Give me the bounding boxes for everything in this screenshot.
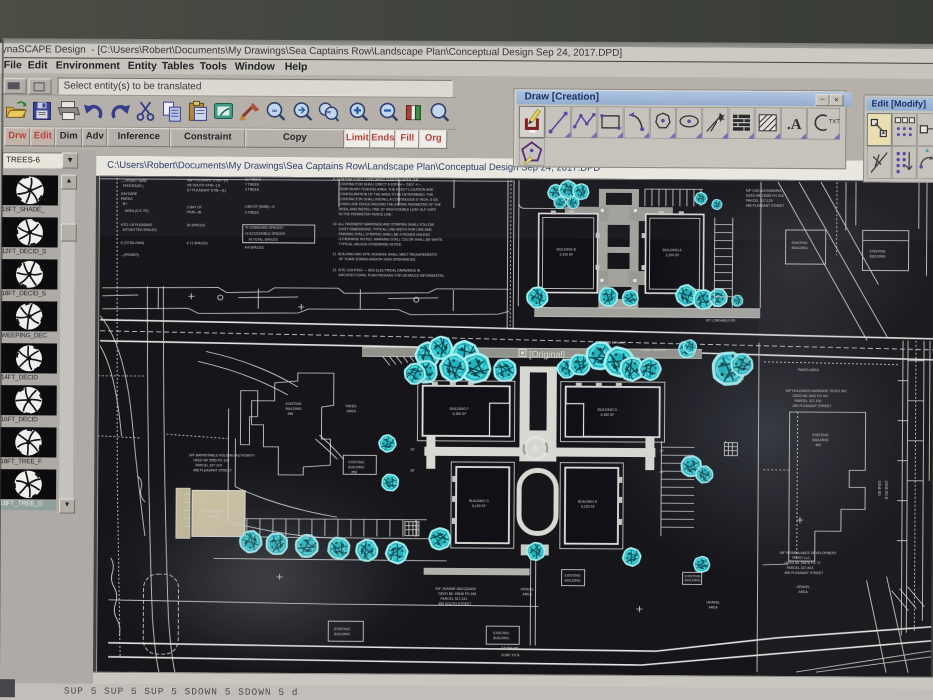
svg-text:ZONE YD B: ZONE YD B — [501, 653, 520, 657]
svg-text:BUILDING E: BUILDING E — [578, 500, 598, 504]
svg-text:12. SITE LIGHTING — SEE ELECTR: 12. SITE LIGHTING — SEE ELECTRICAL DRAWI… — [332, 268, 420, 273]
svg-text:∞: ∞ — [272, 108, 277, 115]
svg-text:6,150 SF: 6,150 SF — [472, 504, 486, 508]
svg-text:N/F JOANNE MACQUADE: N/F JOANNE MACQUADE — [436, 587, 477, 591]
svg-text:6,150 SF: 6,150 SF — [581, 505, 595, 509]
svg-text:PAVED: PAVED — [346, 404, 358, 408]
svg-text:STONE RD: STONE RD — [501, 646, 519, 650]
svg-text:EXISTING: EXISTING — [493, 631, 509, 635]
svg-text:#59 SOUTH STREET: #59 SOUTH STREET — [438, 602, 471, 606]
svg-text:4/4 SPACES: 4/4 SPACES — [245, 246, 265, 250]
svg-text:ARCHITECTURAL PLAN PACKAGE FOR: ARCHITECTURAL PLAN PACKAGE FOR DETAILED … — [338, 273, 444, 278]
svg-text:[Original]: [Original] — [529, 349, 565, 359]
svg-text:BUILDING F: BUILDING F — [450, 407, 469, 411]
svg-text:BUILDING: BUILDING — [286, 407, 302, 411]
svg-text:20': 20' — [410, 448, 415, 452]
svg-text:BUILDING G: BUILDING G — [469, 499, 489, 503]
svg-text:GRAVEL: GRAVEL — [706, 600, 720, 604]
svg-text:OF TOWN ZONING AND/OR SIGN ORD: OF TOWN ZONING AND/OR SIGN ORDINANCES. — [339, 257, 417, 261]
svg-text:AREA: AREA — [522, 592, 532, 596]
svg-text:6,350 SF: 6,350 SF — [453, 412, 467, 416]
svg-text:BUILDING: BUILDING — [565, 579, 581, 583]
svg-text:4.71 SPACES: 4.71 SPACES — [187, 241, 209, 245]
svg-text:#56: #56 — [288, 412, 294, 416]
svg-text:EXISTING: EXISTING — [286, 402, 302, 406]
svg-text:DEED BK 19845 PG 168: DEED BK 19845 PG 168 — [438, 592, 476, 596]
svg-text:∞: ∞ — [326, 109, 331, 116]
svg-text:OTHERWISE NOTED. MARKING STALL: OTHERWISE NOTED. MARKING STALL COLOR SHA… — [339, 237, 444, 242]
svg-text:TXT: TXT — [829, 119, 841, 125]
svg-text:BUILDING: BUILDING — [493, 636, 509, 640]
svg-text:—(PEINER): —(PEINER) — [121, 253, 139, 257]
svg-text:11. BUILDING AND SITE SIGNAGE: 11. BUILDING AND SITE SIGNAGE SHALL MEET… — [333, 252, 438, 257]
svg-text:2,200 SF: 2,200 SF — [560, 253, 574, 257]
svg-text:IN TOTAL SPACES: IN TOTAL SPACES — [249, 238, 279, 242]
svg-text:BUILDING B: BUILDING B — [557, 248, 577, 252]
svg-text:EXISTING: EXISTING — [565, 574, 581, 578]
svg-text:PARCEL 327-131: PARCEL 327-131 — [440, 597, 467, 601]
svg-text:GRAVEL: GRAVEL — [521, 587, 535, 591]
svg-text:AREA: AREA — [708, 605, 718, 609]
svg-text:6 (TOTAL/VAN): 6 (TOTAL/VAN) — [121, 241, 144, 245]
svg-text:AREA: AREA — [347, 409, 357, 413]
svg-text:.A: .A — [787, 117, 802, 133]
svg-text:TYPICAL UNLESS OTHERWISE NOTED: TYPICAL UNLESS OTHERWISE NOTED. — [339, 242, 403, 246]
